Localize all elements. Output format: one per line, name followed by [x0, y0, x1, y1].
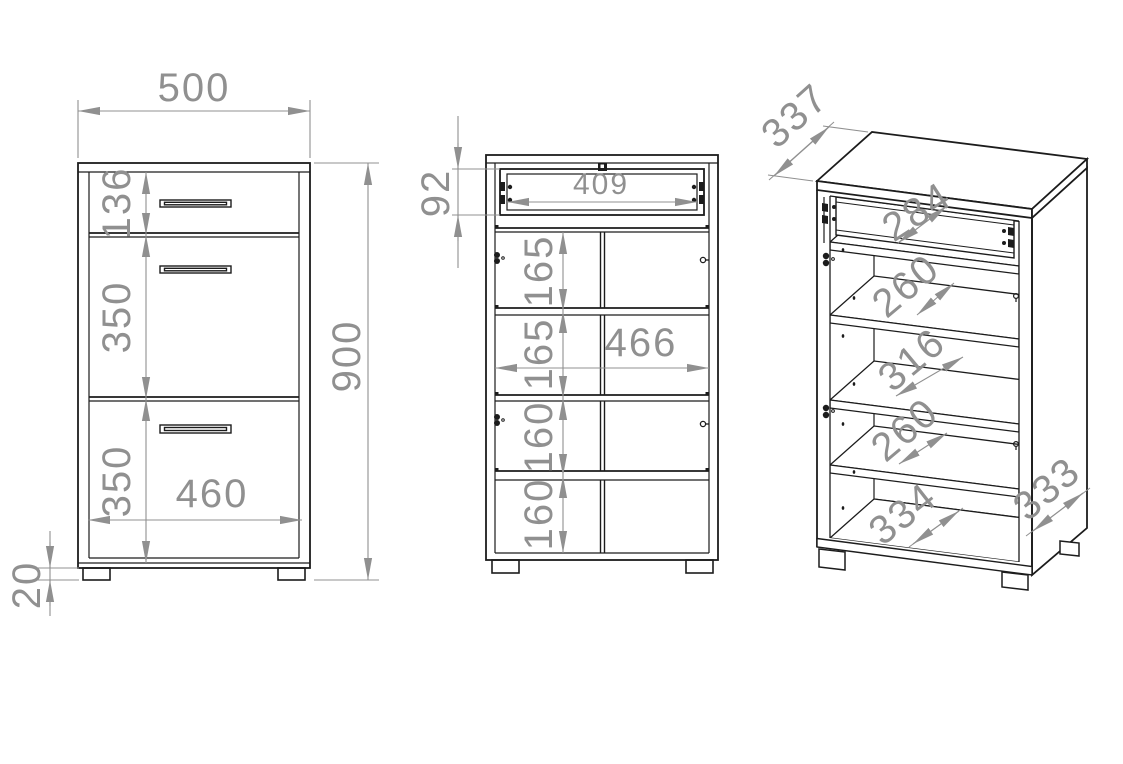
iso-front-left-foot [819, 549, 845, 570]
iso-back-right-foot [1060, 541, 1079, 556]
dim-label-front-inner-width: 460 [176, 474, 249, 514]
front-left-foot [83, 568, 110, 580]
cabinet-technical-drawing: 500 900 136 350 350 460 20 92 409 165 16… [0, 0, 1123, 764]
iso-hinge-lower [823, 405, 829, 418]
drawing-linework [0, 0, 1123, 764]
dim-label-front-overall-width: 500 [158, 68, 231, 108]
iso-hinge-upper [823, 253, 829, 266]
dim-label-compartment-4-height: 160 [519, 478, 559, 551]
dim-label-drawer-inner-width: 409 [573, 170, 629, 200]
iso-front-right-foot [1002, 572, 1028, 590]
dim-label-drawer-opening-height: 92 [416, 169, 456, 218]
open-right-foot [686, 560, 713, 573]
dim-label-compartment-2-height: 165 [519, 318, 559, 391]
dim-label-compartment-1-height: 165 [519, 235, 559, 308]
front-right-foot [278, 568, 305, 580]
dim-label-lower-door-height: 350 [97, 445, 137, 518]
dim-label-open-inner-width: 466 [605, 323, 678, 363]
dim-label-front-overall-height: 900 [327, 320, 367, 393]
dim-label-foot-height: 20 [7, 561, 47, 610]
dim-label-drawer-front-height: 136 [97, 167, 137, 240]
dim-label-compartment-3-height: 160 [519, 401, 559, 474]
open-left-foot [492, 560, 519, 573]
dim-label-upper-door-height: 350 [97, 281, 137, 354]
